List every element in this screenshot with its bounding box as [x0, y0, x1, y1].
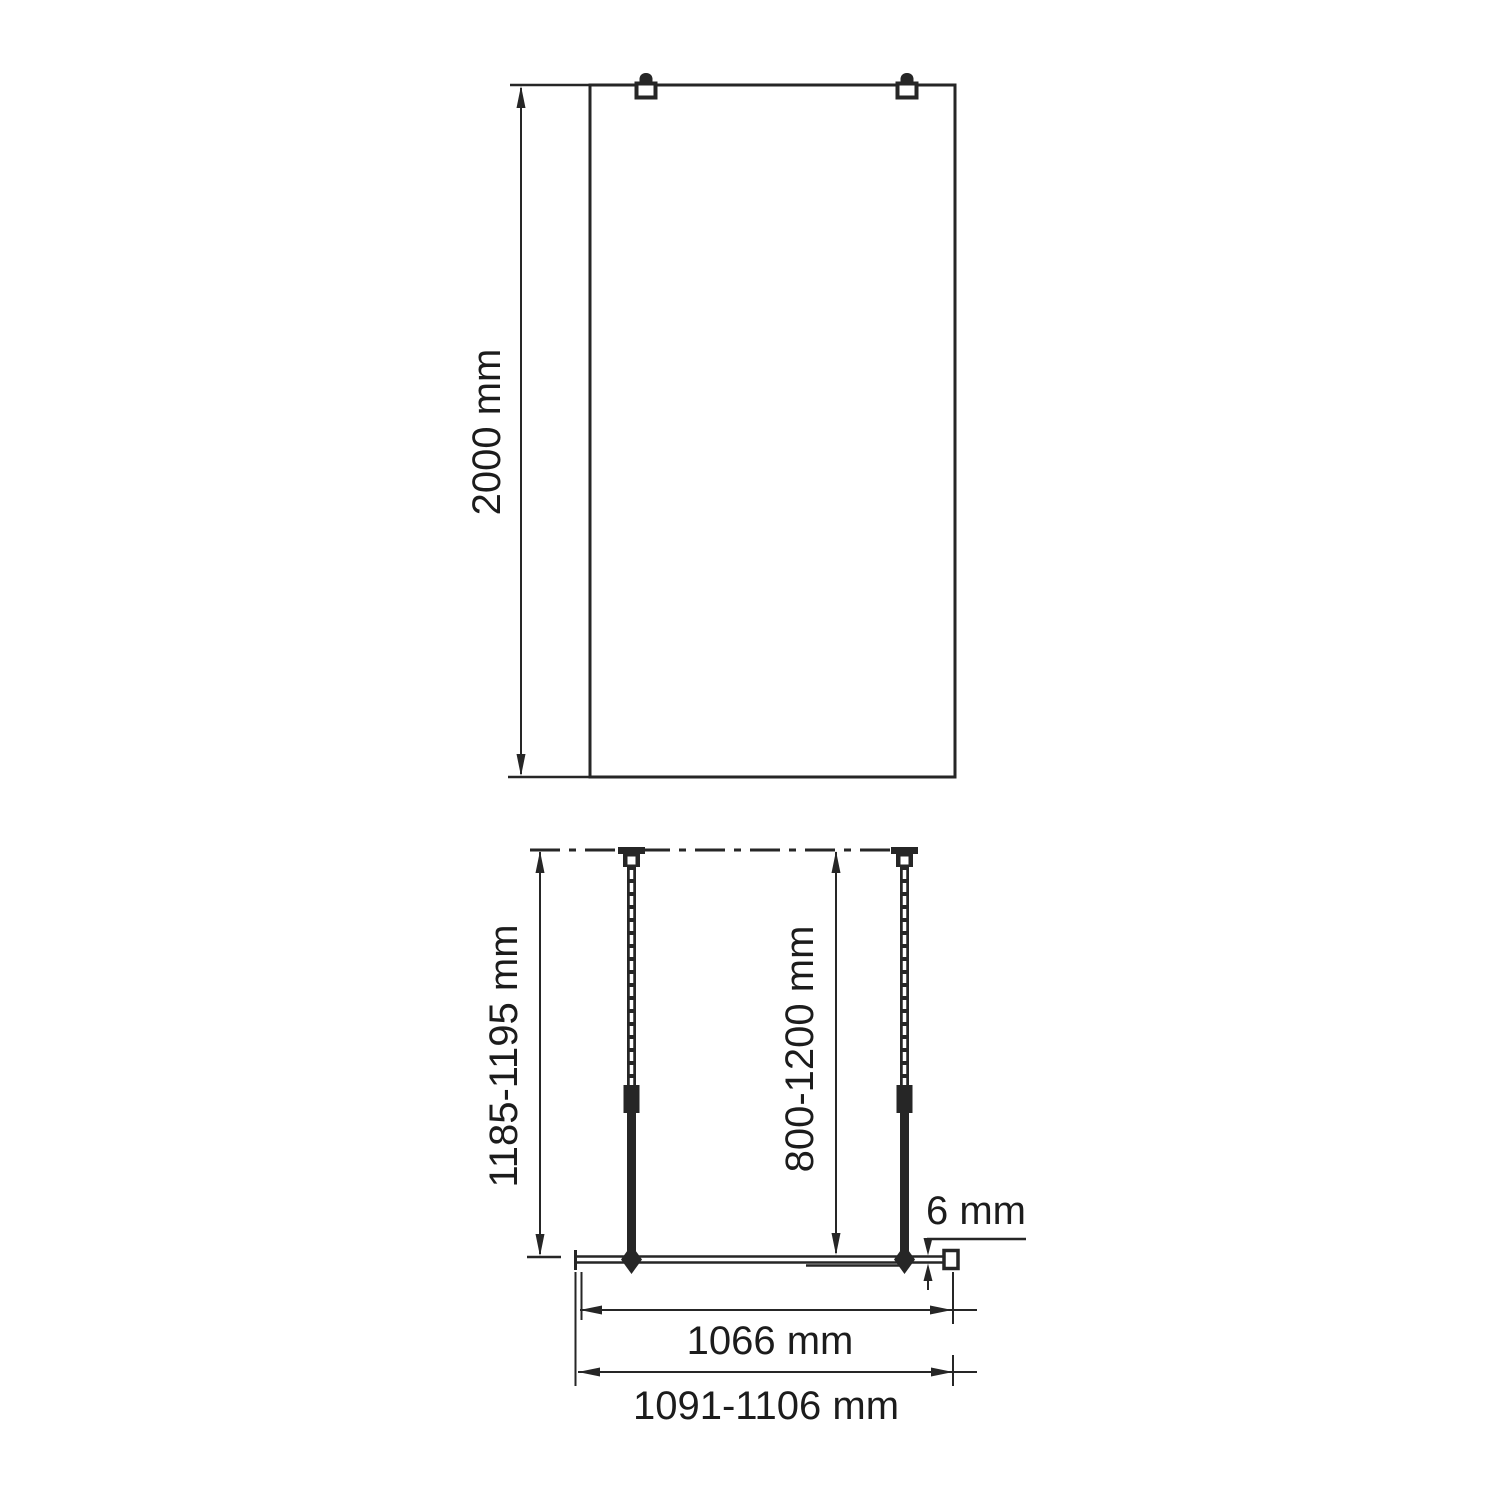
depth-dimension	[527, 851, 561, 1257]
front-elevation	[508, 73, 955, 777]
arrow-down	[517, 754, 526, 776]
overall-width-dimension	[578, 1368, 977, 1377]
glass-width-dimension	[580, 1306, 977, 1315]
glass-width-label: 1066 mm	[687, 1321, 854, 1361]
support-bar	[618, 847, 645, 1274]
panel-clamp-icon	[637, 73, 656, 98]
thickness-dimension	[924, 1238, 1027, 1290]
support-bar	[891, 847, 918, 1274]
arrow-up	[517, 86, 526, 108]
overall-width-label: 1091-1106 mm	[633, 1386, 899, 1426]
technical-drawing-page: 2000 mm 1185-1195 mm 800-1200 mm 6 mm 10…	[0, 0, 1500, 1500]
glass-panel-outline	[590, 85, 955, 777]
front-height-label: 2000 mm	[467, 349, 507, 516]
plan-view	[527, 847, 1026, 1386]
glass-thickness-label: 6 mm	[926, 1191, 1026, 1231]
panel-clamp-icon	[898, 73, 917, 98]
wall-profile	[944, 1251, 958, 1269]
drawing-linework	[0, 0, 1500, 1500]
plan-depth-label: 1185-1195 mm	[484, 924, 524, 1187]
support-bar-range-label: 800-1200 mm	[780, 926, 820, 1173]
